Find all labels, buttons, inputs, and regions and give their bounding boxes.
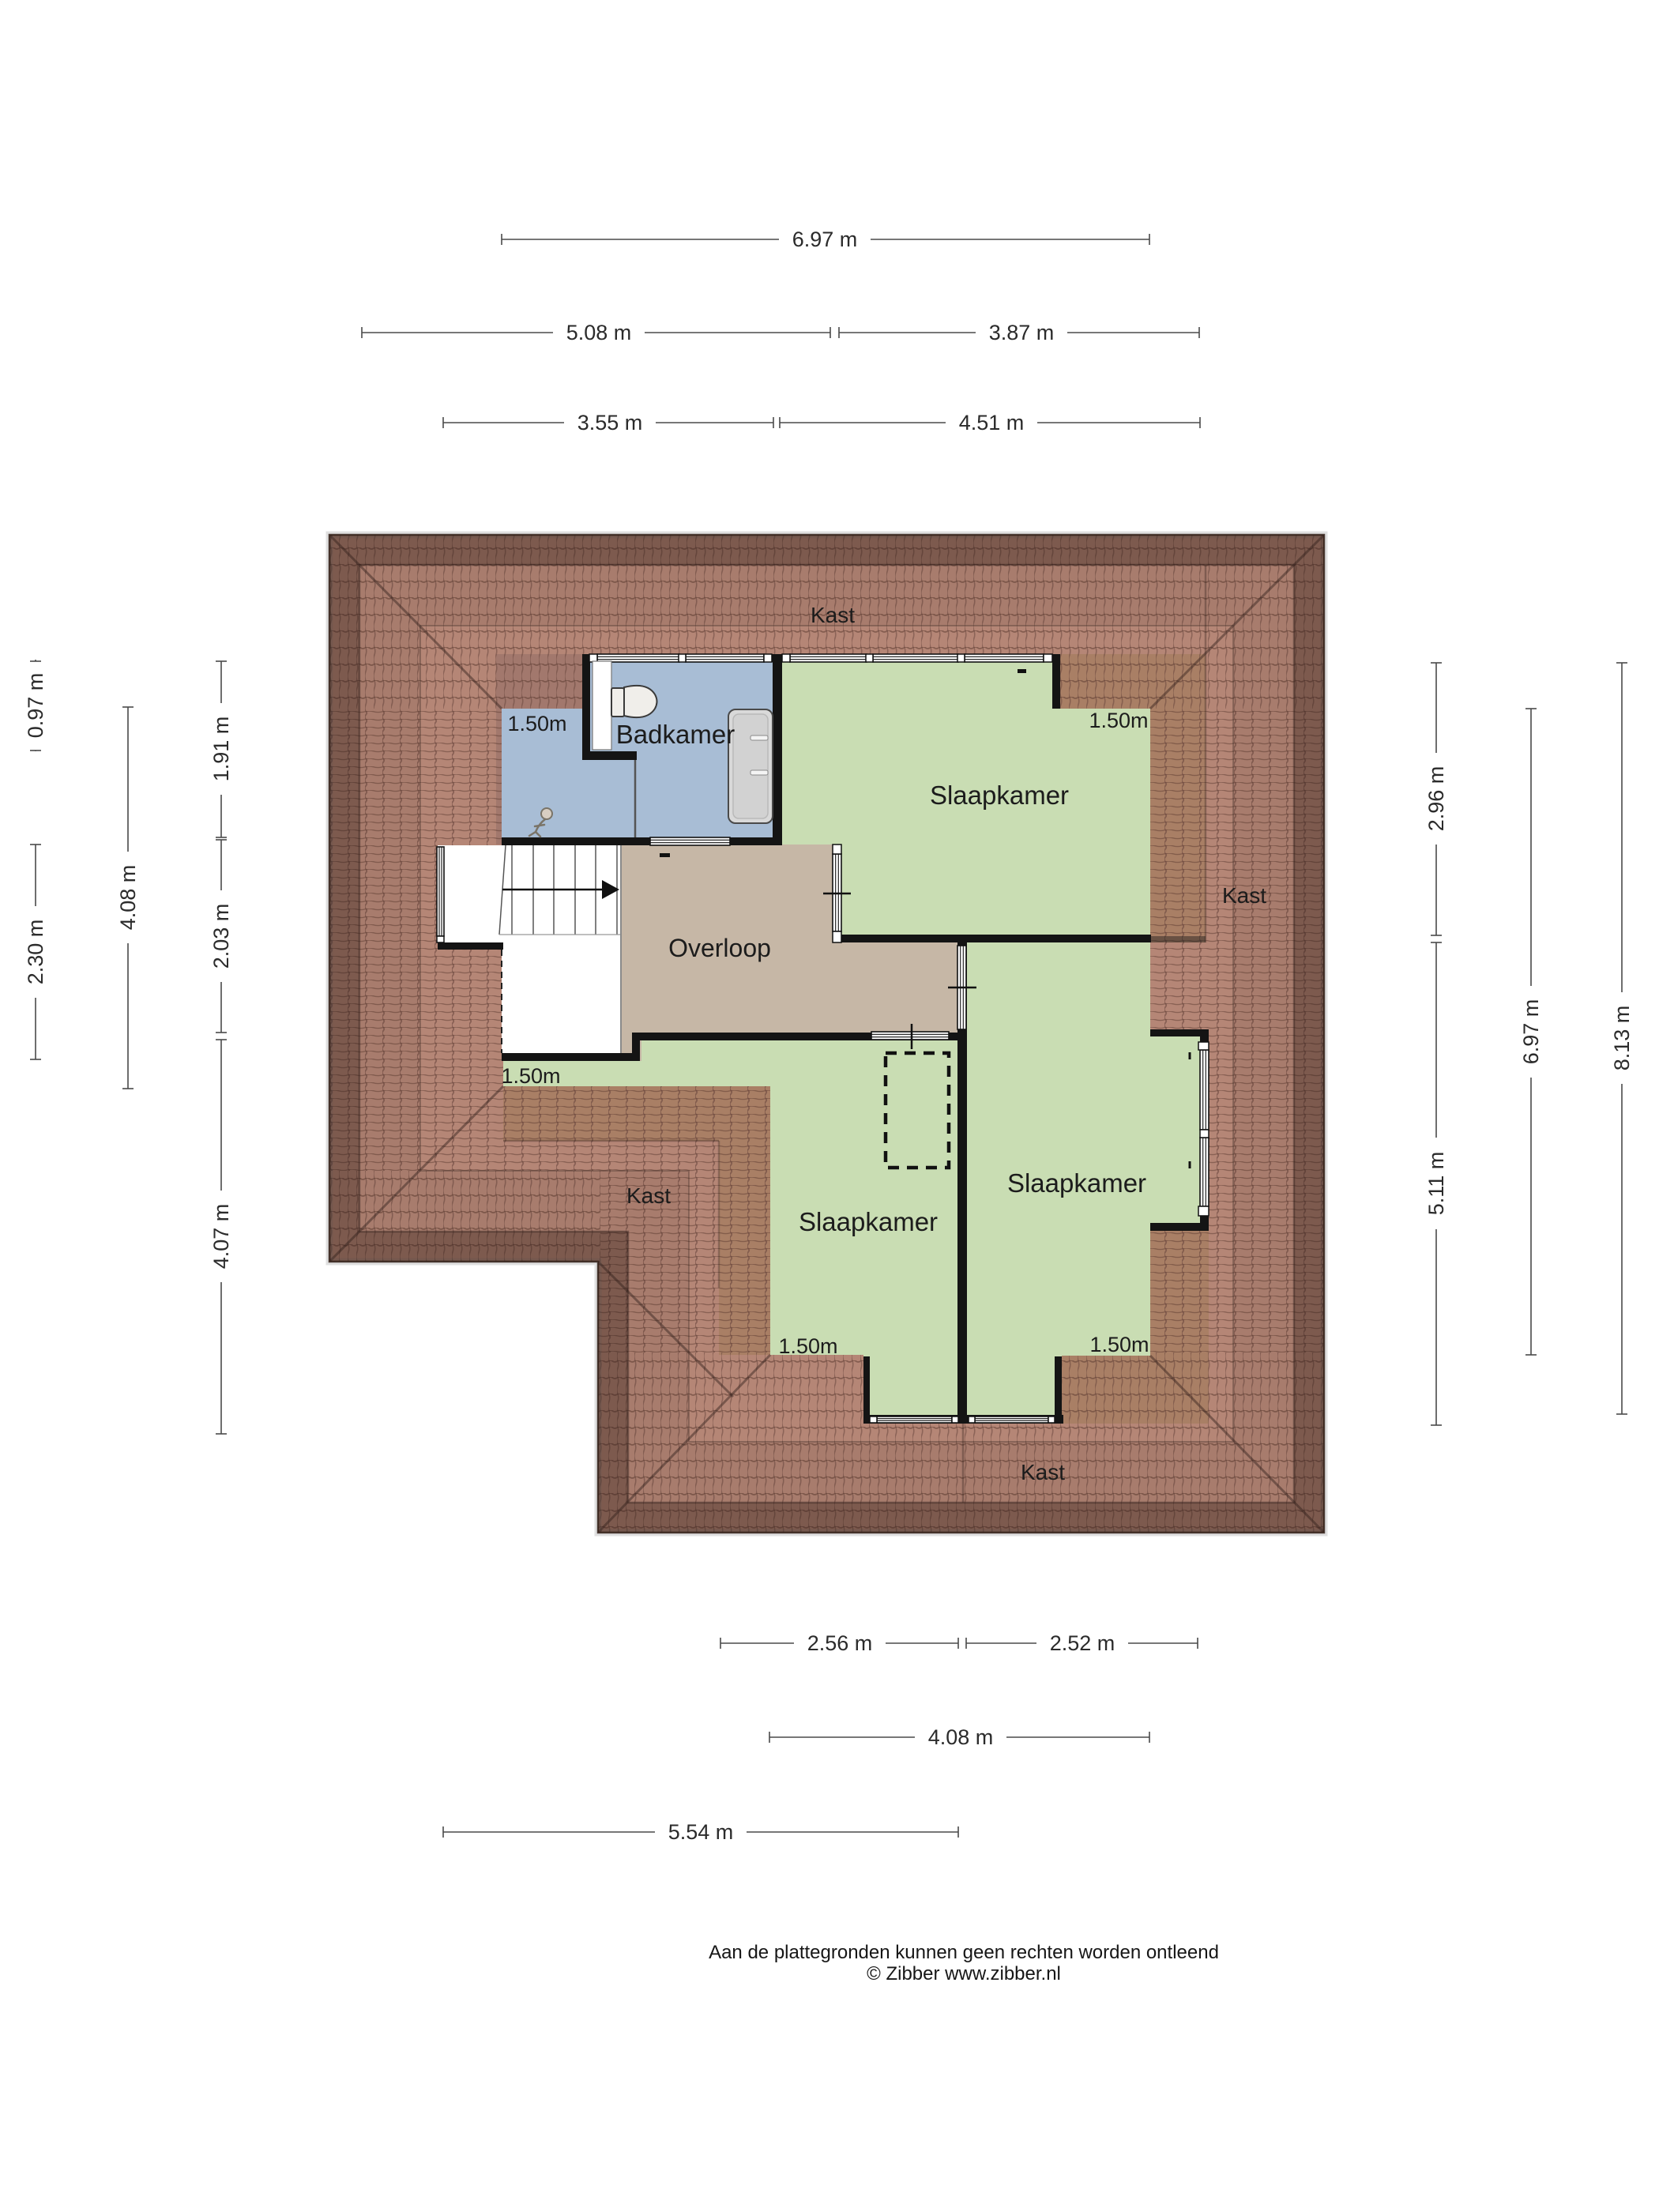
svg-text:4.07 m: 4.07 m [209, 1204, 233, 1270]
svg-text:4.08 m: 4.08 m [928, 1725, 994, 1749]
svg-text:© Zibber www.zibber.nl: © Zibber www.zibber.nl [867, 1963, 1061, 1984]
svg-text:1.50m: 1.50m [778, 1334, 837, 1358]
svg-text:5.08 m: 5.08 m [566, 321, 632, 344]
svg-text:Kast: Kast [811, 603, 855, 627]
svg-text:1.50m: 1.50m [501, 1064, 560, 1088]
svg-text:2.03 m: 2.03 m [209, 904, 233, 969]
svg-text:4.51 m: 4.51 m [959, 411, 1025, 434]
svg-text:Kast: Kast [626, 1183, 671, 1208]
svg-text:1.50m: 1.50m [1089, 1333, 1149, 1356]
svg-text:2.30 m: 2.30 m [24, 920, 47, 985]
svg-text:6.97 m: 6.97 m [1519, 999, 1543, 1065]
svg-text:6.97 m: 6.97 m [792, 228, 858, 251]
svg-text:3.87 m: 3.87 m [989, 321, 1055, 344]
svg-text:Aan de plattegronden kunnen ge: Aan de plattegronden kunnen geen rechten… [709, 1942, 1219, 1963]
svg-text:Overloop: Overloop [668, 934, 771, 962]
svg-text:8.13 m: 8.13 m [1610, 1006, 1634, 1071]
svg-text:2.52 m: 2.52 m [1050, 1631, 1115, 1655]
svg-text:5.54 m: 5.54 m [668, 1820, 734, 1844]
svg-text:4.08 m: 4.08 m [116, 865, 140, 931]
svg-text:Kast: Kast [1021, 1460, 1065, 1484]
svg-text:5.11 m: 5.11 m [1424, 1152, 1448, 1216]
svg-text:Slaapkamer: Slaapkamer [799, 1207, 938, 1236]
svg-text:0.97 m: 0.97 m [24, 673, 47, 739]
svg-text:Kast: Kast [1222, 883, 1266, 908]
svg-text:1.50m: 1.50m [507, 712, 566, 735]
svg-text:1.91 m: 1.91 m [209, 717, 233, 782]
svg-text:Badkamer: Badkamer [616, 720, 735, 749]
svg-text:3.55 m: 3.55 m [577, 411, 643, 434]
svg-text:Slaapkamer: Slaapkamer [1007, 1168, 1146, 1198]
svg-text:Slaapkamer: Slaapkamer [930, 781, 1069, 810]
svg-text:2.56 m: 2.56 m [807, 1631, 873, 1655]
svg-text:1.50m: 1.50m [1089, 709, 1148, 732]
svg-text:2.96 m: 2.96 m [1424, 766, 1448, 832]
